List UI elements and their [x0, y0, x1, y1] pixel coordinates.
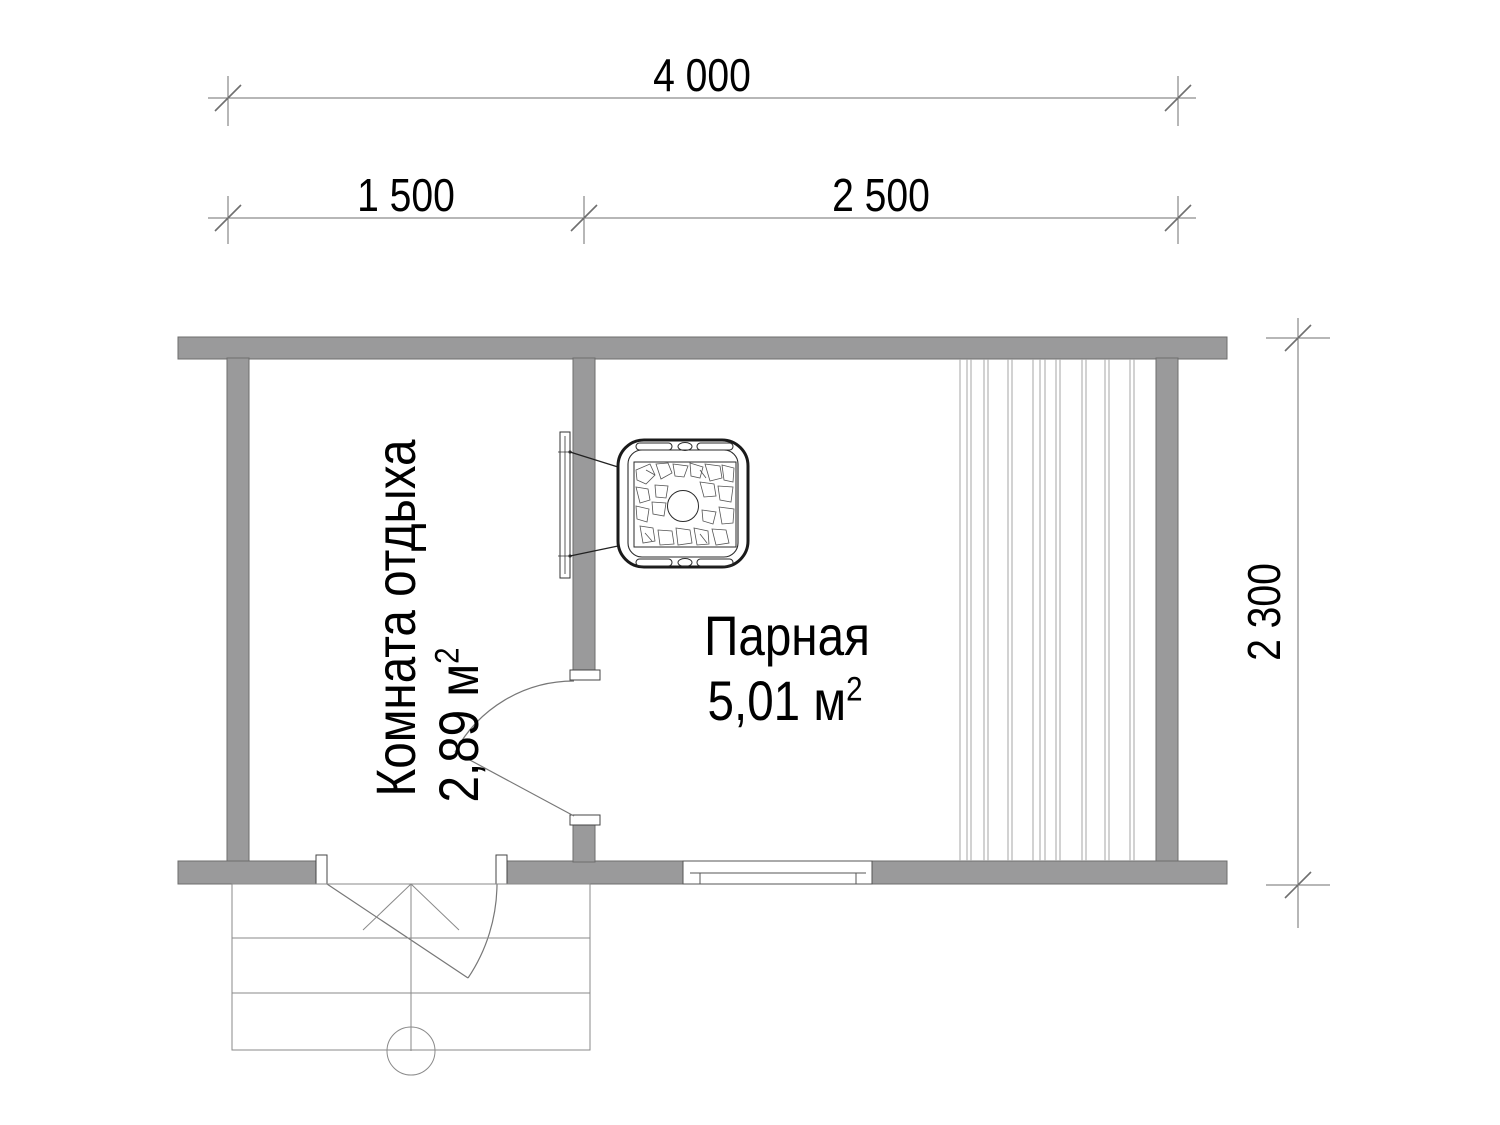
window-symbol	[683, 861, 872, 884]
entrance-door-swing	[327, 884, 497, 978]
stove-feed-frame	[558, 432, 572, 578]
top-wall	[178, 337, 1227, 359]
room-area-steam-sup: 2	[846, 670, 862, 708]
bottom-wall-right	[872, 861, 1227, 884]
stair-direction-arrow	[363, 884, 459, 1075]
steam-door-jamb-top	[570, 670, 600, 680]
steam-door-jamb-bottom	[570, 815, 600, 825]
bench-boards	[960, 359, 1134, 861]
room-label-steam: Парная	[704, 608, 870, 664]
room-area-rest-sup: 2	[428, 647, 466, 663]
entrance-jamb-left	[316, 855, 327, 884]
partition-wall-top	[573, 358, 595, 670]
outer-walls	[178, 337, 1227, 884]
dim-label-right: 2 500	[832, 172, 930, 218]
room-area-steam-value: 5,01 м	[707, 669, 846, 732]
bottom-wall-middle	[507, 861, 683, 884]
bottom-wall-left	[178, 861, 317, 884]
floor-plan: 4 000 1 500 2 500 2 300 Комната отдыха 2…	[0, 0, 1500, 1125]
right-wall	[1156, 358, 1178, 862]
entrance-jamb-right	[496, 855, 507, 884]
room-area-rest-value: 2,89 м	[427, 664, 490, 803]
dim-label-depth: 2 300	[1241, 563, 1287, 661]
room-area-rest: 2,89 м2	[431, 647, 487, 802]
partition-wall	[573, 358, 595, 862]
room-label-rest: Комната отдыха	[368, 440, 424, 797]
dim-label-total: 4 000	[653, 52, 751, 98]
left-wall	[227, 358, 249, 862]
dim-label-left: 1 500	[357, 172, 455, 218]
stove-center-circle	[668, 491, 699, 522]
partition-wall-bottom	[573, 825, 595, 862]
room-area-steam: 5,01 м2	[707, 673, 862, 729]
